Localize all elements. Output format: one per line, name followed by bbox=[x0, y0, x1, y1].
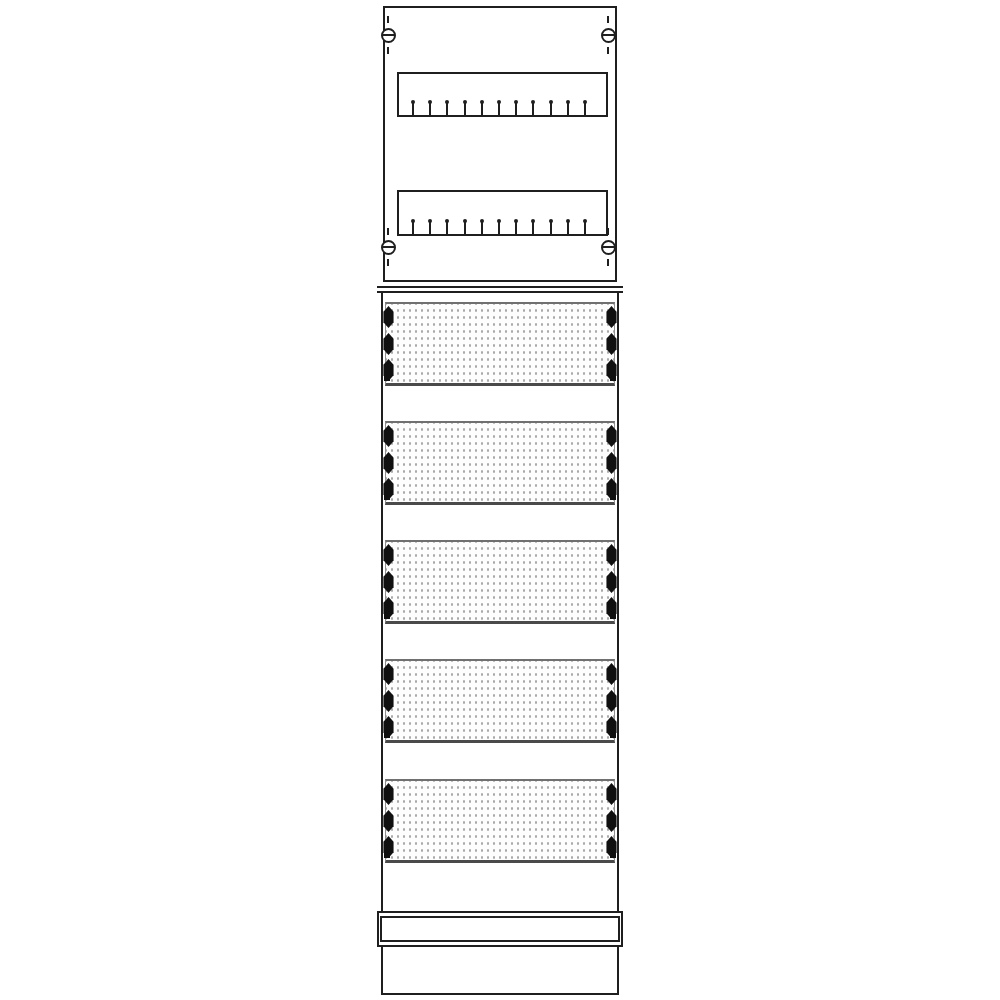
section-divider bbox=[377, 286, 623, 293]
rail-tick bbox=[567, 221, 569, 234]
rail-tick bbox=[515, 102, 517, 115]
screw-centerline-dash bbox=[387, 16, 389, 23]
perforated-cover bbox=[385, 659, 615, 743]
cover-corner-rivet bbox=[384, 375, 390, 381]
cover-corner-rivet bbox=[610, 613, 616, 619]
rail-tick bbox=[481, 221, 483, 234]
mounting-screw-icon bbox=[601, 28, 616, 43]
distribution-column bbox=[381, 289, 619, 995]
perforated-cover bbox=[385, 779, 615, 863]
cover-fastener-icon bbox=[383, 425, 394, 447]
cover-corner-rivet bbox=[384, 494, 390, 500]
rail-tick bbox=[446, 221, 448, 234]
rail-tick bbox=[515, 221, 517, 234]
rail-tick bbox=[464, 221, 466, 234]
rail-tick bbox=[498, 102, 500, 115]
cover-fastener-icon bbox=[383, 571, 394, 593]
screw-centerline-dash bbox=[387, 259, 389, 266]
cover-fastener-icon bbox=[383, 783, 394, 805]
cover-corner-rivet bbox=[610, 494, 616, 500]
rail-tick bbox=[464, 102, 466, 115]
cover-fastener-icon bbox=[383, 544, 394, 566]
perforated-cover bbox=[385, 540, 615, 624]
cover-corner-rivet bbox=[610, 732, 616, 738]
cover-fastener-icon bbox=[383, 810, 394, 832]
cover-corner-rivet bbox=[384, 852, 390, 858]
screw-centerline-dash bbox=[387, 47, 389, 54]
rail-tick bbox=[412, 221, 414, 234]
rail-tick bbox=[584, 102, 586, 115]
cover-fastener-icon bbox=[383, 333, 394, 355]
cover-fastener-icon bbox=[383, 663, 394, 685]
mounting-screw-icon bbox=[381, 240, 396, 255]
screw-centerline-dash bbox=[387, 228, 389, 235]
perforated-cover bbox=[385, 302, 615, 386]
mounting-screw-icon bbox=[381, 28, 396, 43]
rail-tick bbox=[584, 221, 586, 234]
cover-fastener-icon bbox=[383, 306, 394, 328]
rail-tick bbox=[567, 102, 569, 115]
rail-tick bbox=[481, 102, 483, 115]
screw-centerline-dash bbox=[607, 16, 609, 23]
rail-tick bbox=[498, 221, 500, 234]
rail-tick bbox=[532, 221, 534, 234]
device-rail bbox=[397, 72, 608, 117]
meter-frame bbox=[383, 6, 617, 282]
rail-tick bbox=[412, 102, 414, 115]
perforated-cover bbox=[385, 421, 615, 505]
cover-corner-rivet bbox=[384, 732, 390, 738]
drawing-canvas bbox=[0, 0, 1000, 1000]
cover-corner-rivet bbox=[610, 852, 616, 858]
device-rail bbox=[397, 190, 608, 236]
screw-centerline-dash bbox=[607, 259, 609, 266]
base-cover-strip-inner bbox=[380, 916, 620, 942]
rail-tick bbox=[429, 221, 431, 234]
rail-tick bbox=[550, 102, 552, 115]
rail-tick bbox=[446, 102, 448, 115]
screw-centerline-dash bbox=[607, 47, 609, 54]
rail-tick bbox=[550, 221, 552, 234]
rail-tick bbox=[429, 102, 431, 115]
rail-tick bbox=[532, 102, 534, 115]
cover-corner-rivet bbox=[384, 613, 390, 619]
cover-fastener-icon bbox=[383, 452, 394, 474]
cover-corner-rivet bbox=[610, 375, 616, 381]
cover-fastener-icon bbox=[383, 690, 394, 712]
mounting-screw-icon bbox=[601, 240, 616, 255]
base-cover-strip bbox=[377, 911, 623, 947]
